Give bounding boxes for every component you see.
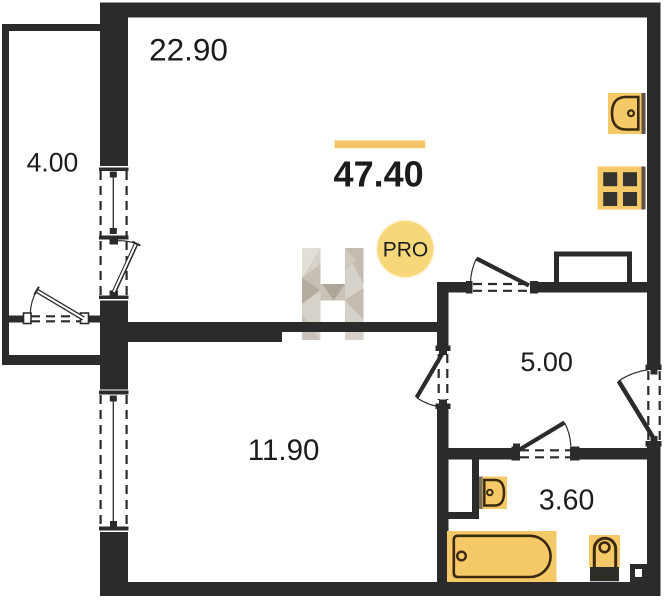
svg-text:5.00: 5.00: [520, 347, 573, 377]
svg-text:11.90: 11.90: [248, 434, 320, 467]
svg-text:22.90: 22.90: [149, 32, 228, 68]
svg-text:4.00: 4.00: [27, 147, 79, 177]
svg-text:PRO: PRO: [383, 239, 429, 262]
svg-text:3.60: 3.60: [539, 485, 594, 517]
svg-text:47.40: 47.40: [334, 154, 424, 195]
